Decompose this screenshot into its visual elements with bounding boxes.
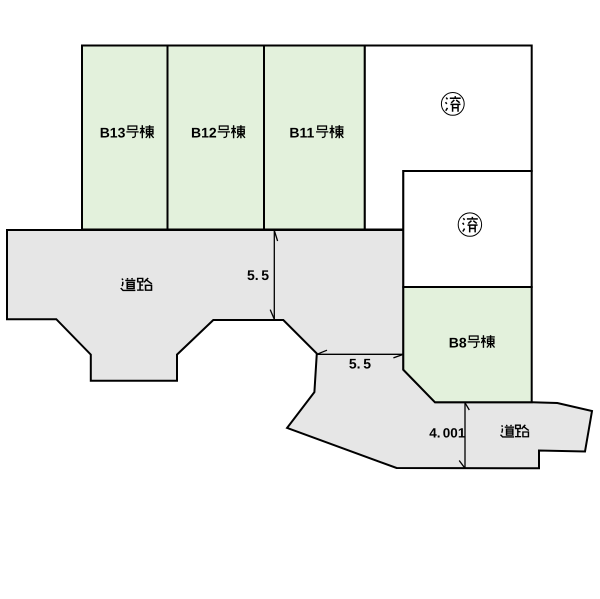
svg-text:5: 5: [363, 356, 371, 372]
svg-text:5: 5: [261, 267, 269, 283]
svg-text:B12: B12: [191, 125, 217, 141]
svg-text:B13: B13: [100, 125, 126, 141]
svg-text:B11: B11: [289, 125, 314, 141]
svg-text:5.: 5.: [247, 267, 259, 283]
svg-text:B8: B8: [449, 334, 467, 350]
svg-text:4.: 4.: [429, 426, 440, 441]
svg-text:5.: 5.: [349, 356, 361, 372]
svg-text:001: 001: [443, 426, 466, 441]
